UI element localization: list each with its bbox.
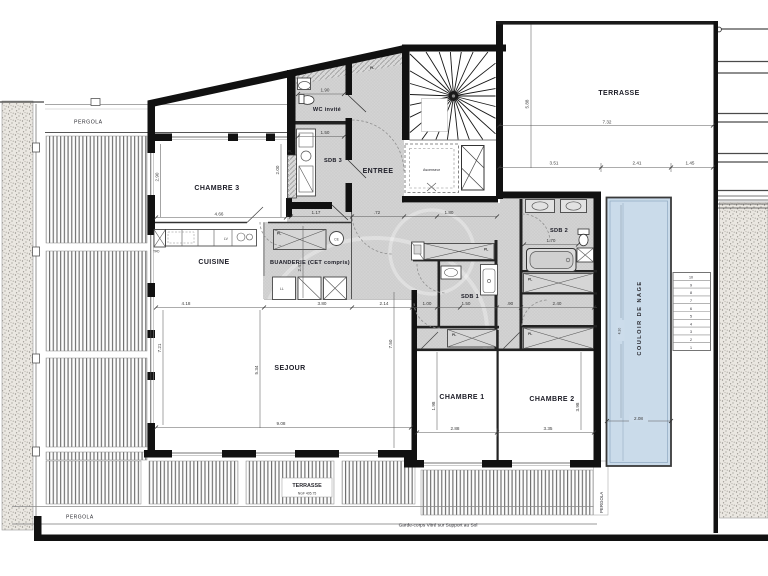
svg-text:4.30: 4.30 bbox=[618, 328, 622, 335]
svg-text:3.51: 3.51 bbox=[550, 161, 559, 166]
svg-text:CHAMBRE 3: CHAMBRE 3 bbox=[194, 185, 239, 192]
svg-text:2.41: 2.41 bbox=[633, 161, 642, 166]
svg-text:2.08: 2.08 bbox=[634, 416, 643, 421]
svg-text:PL: PL bbox=[528, 332, 532, 336]
svg-text:PL: PL bbox=[528, 278, 532, 282]
svg-text:1.98: 1.98 bbox=[431, 401, 436, 410]
svg-text:1: 1 bbox=[690, 346, 692, 350]
svg-text:NGF 405.75: NGF 405.75 bbox=[298, 492, 317, 496]
svg-text:WC invité: WC invité bbox=[313, 107, 341, 113]
svg-text:CE: CE bbox=[334, 238, 339, 242]
svg-text:SDB 3: SDB 3 bbox=[324, 158, 342, 164]
svg-text:4.66: 4.66 bbox=[215, 212, 224, 217]
svg-text:Garde-corps Vitré sur Support: Garde-corps Vitré sur Support au Sol bbox=[399, 523, 478, 529]
svg-text:PERGOLA: PERGOLA bbox=[599, 492, 604, 513]
svg-text:1.45: 1.45 bbox=[686, 161, 695, 166]
svg-text:PERGOLA: PERGOLA bbox=[66, 515, 94, 521]
svg-text:2: 2 bbox=[690, 338, 692, 342]
svg-text:3.35: 3.35 bbox=[544, 426, 553, 431]
svg-text:LL: LL bbox=[280, 287, 284, 291]
svg-text:5.34: 5.34 bbox=[254, 365, 259, 374]
svg-text:PL: PL bbox=[484, 248, 488, 252]
svg-text:SDB 1: SDB 1 bbox=[461, 294, 479, 300]
svg-text:.72: .72 bbox=[374, 210, 381, 215]
svg-text:7.32: 7.32 bbox=[603, 120, 612, 125]
svg-text:1.70: 1.70 bbox=[547, 238, 556, 243]
svg-text:6: 6 bbox=[690, 307, 692, 311]
svg-text:1.50: 1.50 bbox=[321, 130, 330, 135]
svg-text:7.50: 7.50 bbox=[388, 339, 393, 348]
svg-text:9.08: 9.08 bbox=[277, 421, 286, 426]
svg-text:ENTREE: ENTREE bbox=[363, 168, 394, 175]
svg-text:2.90: 2.90 bbox=[155, 172, 160, 181]
svg-text:4: 4 bbox=[690, 322, 692, 326]
svg-text:4.18: 4.18 bbox=[182, 301, 191, 306]
svg-text:1.00: 1.00 bbox=[423, 301, 432, 306]
svg-text:1.17: 1.17 bbox=[312, 210, 321, 215]
svg-text:8: 8 bbox=[690, 291, 692, 295]
svg-text:TR0: TR0 bbox=[153, 250, 160, 254]
svg-text:7.21: 7.21 bbox=[157, 343, 162, 352]
svg-text:Ascenseur: Ascenseur bbox=[423, 168, 441, 172]
svg-text:CHAMBRE 1: CHAMBRE 1 bbox=[439, 394, 484, 401]
svg-text:5: 5 bbox=[690, 315, 692, 319]
svg-text:PL: PL bbox=[452, 333, 456, 337]
svg-text:5.88: 5.88 bbox=[525, 99, 530, 108]
svg-text:COULOIR DE NAGE: COULOIR DE NAGE bbox=[637, 280, 643, 355]
svg-text:2.00: 2.00 bbox=[275, 165, 280, 174]
svg-text:1.80: 1.80 bbox=[445, 210, 454, 215]
svg-text:2.40: 2.40 bbox=[553, 301, 562, 306]
svg-text:2.88: 2.88 bbox=[451, 426, 460, 431]
svg-text:10: 10 bbox=[689, 276, 693, 280]
svg-text:SDB 2: SDB 2 bbox=[550, 228, 568, 234]
svg-text:PL: PL bbox=[288, 150, 292, 154]
svg-text:BUANDERIE (CET compris): BUANDERIE (CET compris) bbox=[270, 260, 350, 266]
svg-text:PERGOLA: PERGOLA bbox=[74, 120, 103, 126]
svg-text:CHAMBRE 2: CHAMBRE 2 bbox=[529, 396, 574, 403]
svg-text:.90: .90 bbox=[507, 301, 514, 306]
svg-text:2.14: 2.14 bbox=[380, 301, 389, 306]
svg-text:SEJOUR: SEJOUR bbox=[274, 365, 305, 372]
svg-text:9: 9 bbox=[690, 283, 692, 287]
svg-text:3: 3 bbox=[690, 330, 692, 334]
svg-text:1.90: 1.90 bbox=[321, 88, 330, 93]
svg-text:7: 7 bbox=[690, 299, 692, 303]
svg-text:1.50: 1.50 bbox=[462, 301, 471, 306]
svg-text:TERRASSE: TERRASSE bbox=[292, 483, 322, 489]
svg-text:TERRASSE: TERRASSE bbox=[598, 90, 639, 97]
svg-text:PL: PL bbox=[277, 232, 281, 236]
svg-text:CUISINE: CUISINE bbox=[198, 259, 229, 266]
svg-text:3.80: 3.80 bbox=[318, 301, 327, 306]
svg-text:3.98: 3.98 bbox=[575, 402, 580, 411]
svg-text:PL: PL bbox=[370, 66, 374, 70]
